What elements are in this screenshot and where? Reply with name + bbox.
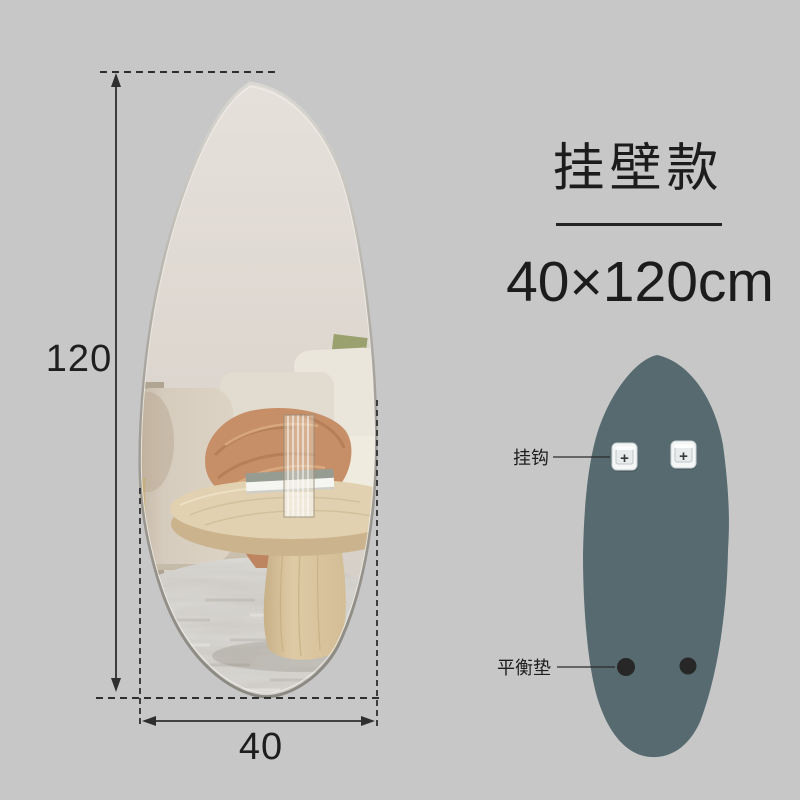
width-dimension-label: 40 — [217, 728, 305, 766]
arrow-right-icon — [361, 716, 375, 726]
product-infographic: + + 120 40 挂壁款 40×120cm 挂钩 平衡垫 — [0, 0, 800, 800]
product-style-title: 挂壁款 — [478, 140, 798, 200]
mirror-front — [120, 60, 412, 720]
arrow-up-icon — [111, 73, 121, 87]
hook-part-label: 挂钩 — [489, 449, 549, 467]
arrow-left-icon — [142, 716, 156, 726]
title-divider — [556, 223, 722, 226]
product-graphic: + + — [0, 0, 800, 800]
product-size-text: 40×120cm — [460, 251, 800, 314]
mirror-back-view: + + — [553, 355, 729, 757]
balance-pad-icon — [680, 658, 697, 675]
hook-screw-glyph: + — [620, 450, 629, 467]
back-panel-shape — [583, 355, 729, 757]
reflection-rug — [128, 557, 388, 712]
hook-screw-glyph: + — [679, 448, 688, 465]
hook-icon: + — [612, 443, 638, 472]
reflection-table-pedestal — [264, 545, 346, 660]
hook-icon: + — [671, 441, 697, 470]
reflection-armrest-shade — [122, 392, 174, 492]
reflection-vase — [284, 415, 314, 518]
height-dimension-label: 120 — [35, 340, 123, 378]
mirror-reflection — [120, 60, 412, 720]
arrow-down-icon — [111, 678, 121, 692]
balance-pad-part-label: 平衡垫 — [475, 659, 551, 677]
balance-pad-icon — [617, 658, 635, 676]
